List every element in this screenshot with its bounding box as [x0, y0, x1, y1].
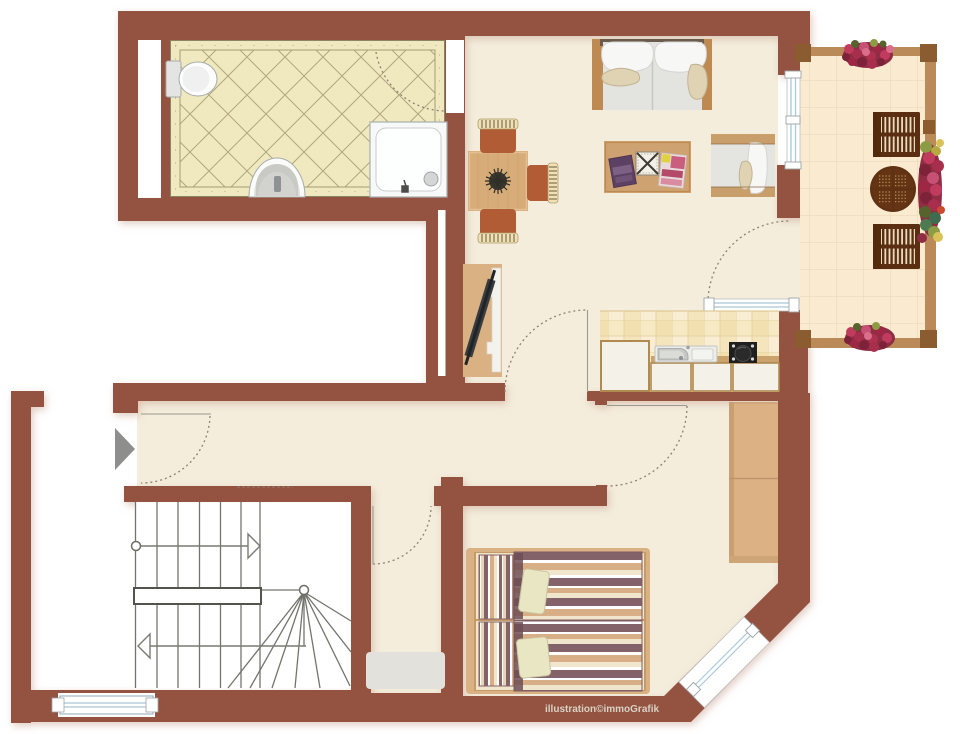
svg-text:illustration©immoGrafik: illustration©immoGrafik	[545, 704, 659, 715]
